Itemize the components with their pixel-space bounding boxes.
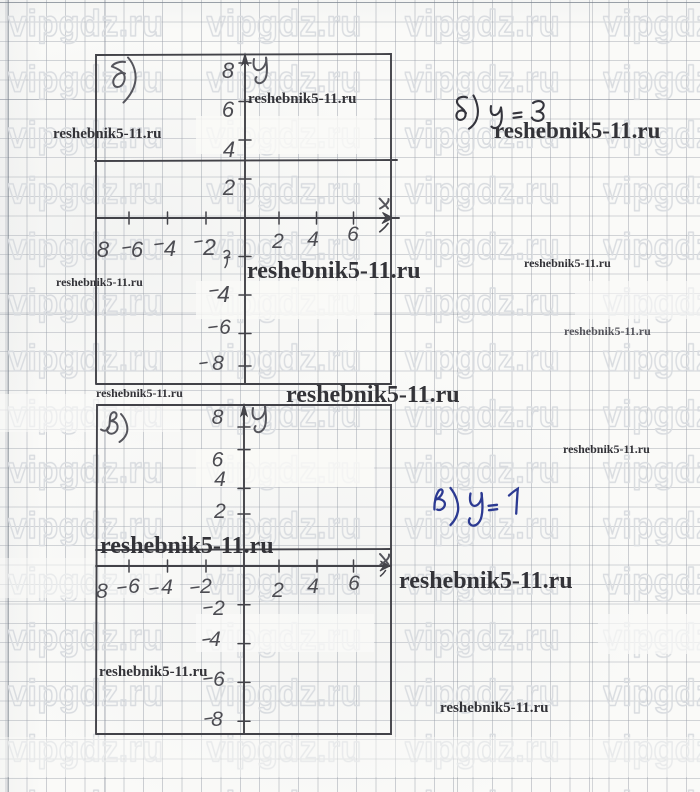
svg-text:4: 4 bbox=[217, 281, 230, 307]
svg-text:2: 2 bbox=[199, 575, 212, 598]
svg-text:6: 6 bbox=[128, 575, 140, 598]
svg-text:6: 6 bbox=[222, 97, 235, 122]
svg-text:6: 6 bbox=[219, 316, 231, 339]
svg-text:6: 6 bbox=[213, 668, 225, 691]
svg-text:6: 6 bbox=[131, 237, 144, 262]
svg-text:8: 8 bbox=[96, 580, 108, 603]
svg-text:8: 8 bbox=[212, 352, 224, 375]
svg-text:4: 4 bbox=[209, 628, 221, 651]
svg-text:2: 2 bbox=[212, 597, 225, 620]
svg-text:8: 8 bbox=[97, 237, 110, 262]
svg-text:2: 2 bbox=[202, 234, 216, 260]
svg-text:2: 2 bbox=[271, 579, 284, 602]
svg-text:4: 4 bbox=[164, 236, 176, 261]
svg-text:4: 4 bbox=[307, 228, 319, 251]
svg-text:2: 2 bbox=[222, 175, 235, 200]
svg-text:2: 2 bbox=[271, 230, 284, 253]
svg-text:4: 4 bbox=[307, 575, 319, 598]
svg-text:8: 8 bbox=[211, 708, 223, 731]
svg-text:4: 4 bbox=[223, 137, 235, 162]
svg-text:8: 8 bbox=[222, 58, 235, 83]
svg-text:8: 8 bbox=[212, 406, 224, 429]
svg-text:4: 4 bbox=[214, 468, 226, 491]
svg-text:6: 6 bbox=[347, 223, 359, 246]
svg-text:6: 6 bbox=[348, 572, 360, 595]
svg-text:2: 2 bbox=[213, 500, 226, 523]
svg-text:4: 4 bbox=[161, 576, 173, 599]
